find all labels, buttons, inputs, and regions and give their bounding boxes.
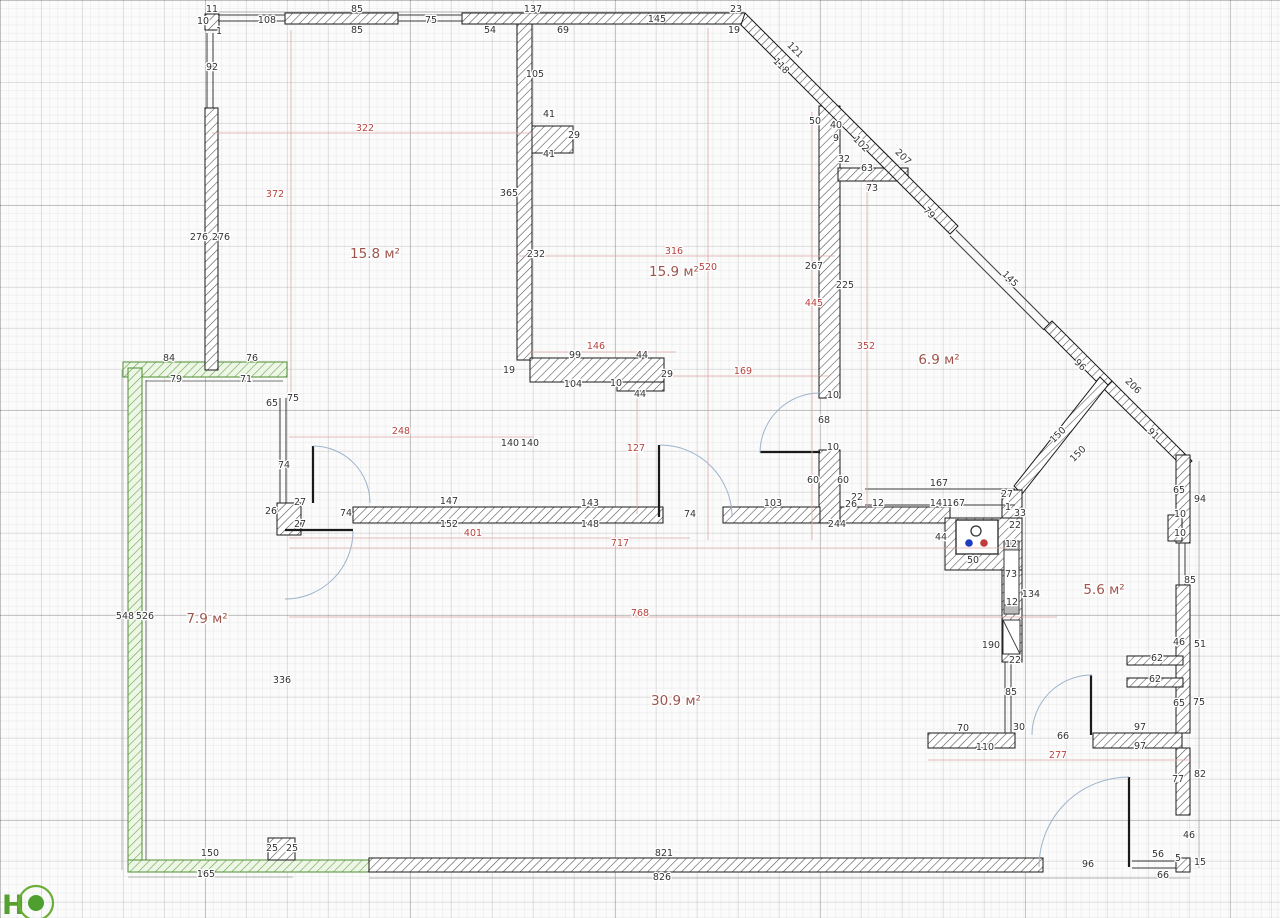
- dimension-label: 30: [1013, 722, 1025, 733]
- dimension-label: 10: [610, 378, 622, 389]
- dimension-label: 82: [1194, 769, 1206, 780]
- dimension-label: 23: [730, 4, 742, 15]
- dimension-label: 22: [1009, 655, 1021, 666]
- dimension-label: 150: [1068, 444, 1089, 465]
- dimension-label: 85: [351, 4, 363, 15]
- door-arc: [760, 393, 820, 453]
- dimension-label-red: 248: [392, 426, 410, 437]
- wall-159-east: [819, 106, 840, 398]
- dimension-label-red: 768: [631, 608, 649, 619]
- dimension-label: 225: [836, 280, 854, 291]
- dimension-label: 140: [521, 438, 539, 449]
- dimension-label: 137: [524, 4, 542, 15]
- dimension-label: 32: [838, 154, 850, 165]
- dimension-label: 60: [807, 475, 819, 486]
- dimension-label: 46: [1173, 637, 1185, 648]
- dimension-label: 97: [1134, 741, 1146, 752]
- dimension-label: 134: [1022, 589, 1040, 600]
- dimension-label: 77: [1172, 774, 1184, 785]
- dimension-label: 29: [568, 130, 580, 141]
- dimension-label: 1: [216, 26, 222, 37]
- dimension-label: 108: [258, 15, 276, 26]
- dimension-label: 44: [935, 532, 947, 543]
- dimension-label: 19: [728, 25, 740, 36]
- dimension-label: 65: [1173, 485, 1185, 496]
- dimension-label-red: 372: [266, 189, 284, 200]
- dimension-label: 276: [212, 232, 230, 243]
- dimension-label: 821: [655, 848, 673, 859]
- wall-159-bottom: [530, 358, 664, 382]
- room-area-label: 30.9 м²: [651, 693, 701, 709]
- electric-panel-icon: [956, 520, 998, 554]
- wall-green-bottom: [128, 860, 369, 872]
- dimension-label: 65: [266, 398, 278, 409]
- dimension-label: 145: [999, 269, 1020, 290]
- dimension-label: 97: [1134, 722, 1146, 733]
- door-arc: [1032, 675, 1092, 735]
- dimension-label: 71: [240, 374, 252, 385]
- dimension-label: 85: [1184, 575, 1196, 586]
- dimension-label: 75: [287, 393, 299, 404]
- dimension-label: 99: [569, 350, 581, 361]
- dimension-label: 73: [1005, 569, 1017, 580]
- dimension-label: 152: [440, 519, 458, 530]
- dimension-label: 276: [190, 232, 208, 243]
- dimension-label: 69: [557, 25, 569, 36]
- dimension-label: 105: [526, 69, 544, 80]
- dimension-label: 25: [286, 843, 298, 854]
- logo-icon: Н: [2, 886, 53, 918]
- dimension-label: 147: [440, 496, 458, 507]
- dimension-label: 267: [805, 261, 823, 272]
- dimension-label: 26: [845, 499, 857, 510]
- dimension-label: 62: [1149, 674, 1161, 685]
- dimension-label: 19: [503, 365, 515, 376]
- dimension-label: 143: [581, 498, 599, 509]
- dimension-label: 826: [653, 872, 671, 883]
- door-arc: [1039, 777, 1129, 867]
- dimension-label: 26: [265, 506, 277, 517]
- dimension-label: 27: [1001, 489, 1013, 500]
- dimension-label-red: 401: [464, 528, 482, 539]
- vent-duct-icon: [1003, 620, 1020, 654]
- dimension-label: 190: [982, 640, 1000, 651]
- dimension-label: 10: [197, 16, 209, 27]
- dimension-label: 70: [957, 723, 969, 734]
- dimension-label: 10: [827, 390, 839, 401]
- dimension-label: 68: [818, 415, 830, 426]
- dimension-label: 25: [266, 843, 278, 854]
- dimension-label: 12: [872, 498, 884, 509]
- dimension-label: 27: [294, 519, 306, 530]
- dimension-label: 76: [246, 353, 258, 364]
- dimension-label: 50: [967, 555, 979, 566]
- dimension-label: 85: [1005, 687, 1017, 698]
- wall-hall-mid: [723, 507, 820, 523]
- dimension-label: 365: [500, 188, 518, 199]
- door-arc: [313, 446, 370, 503]
- dimension-label: 11: [206, 4, 218, 15]
- dimension-label-red: 127: [627, 443, 645, 454]
- walls-layer: [123, 13, 1192, 872]
- dimension-label: 51: [1194, 639, 1206, 650]
- dimension-label: 44: [636, 350, 648, 361]
- dimension-label: 66: [1057, 731, 1069, 742]
- wall-159-east-pillar: [819, 450, 840, 523]
- dimension-label: 244: [828, 519, 846, 530]
- dimension-label: 79: [170, 374, 182, 385]
- room-area-label: 6.9 м²: [918, 352, 959, 368]
- dimension-label: 56: [1152, 849, 1164, 860]
- room-area-label: 7.9 м²: [186, 611, 227, 627]
- dimension-label: 148: [581, 519, 599, 530]
- room-area-label: 5.6 м²: [1083, 582, 1124, 598]
- dimension-label: 74: [340, 508, 352, 519]
- dimension-label: 63: [861, 163, 873, 174]
- dimension-label: 10: [1174, 509, 1186, 520]
- dimension-label: 94: [1194, 494, 1206, 505]
- dimension-label: 74: [278, 460, 290, 471]
- dimension-label: 12: [1005, 539, 1017, 550]
- dimension-label: 44: [634, 389, 646, 400]
- dimension-label: 165: [197, 869, 215, 880]
- dimension-label: 65: [1173, 698, 1185, 709]
- room-area-label: 15.8 м²: [350, 246, 400, 262]
- dimension-label: 54: [484, 25, 496, 36]
- dimension-label: 41: [543, 109, 555, 120]
- dimension-label-red: 445: [805, 298, 823, 309]
- dimension-label: 41: [543, 149, 555, 160]
- dimension-label: 167: [947, 498, 965, 509]
- dimension-label-red: 352: [857, 341, 875, 352]
- dimension-label: 15: [1194, 857, 1206, 868]
- labels-layer: 1110110885857513754699227627610541294136…: [116, 4, 1206, 883]
- dimension-label: 73: [866, 183, 878, 194]
- dimension-label: 12: [1006, 597, 1018, 608]
- dimension-label: 27: [294, 497, 306, 508]
- dimension-label: 66: [1157, 870, 1169, 881]
- dimension-label: 84: [163, 353, 175, 364]
- dimension-label: 232: [527, 249, 545, 260]
- wall-bottom: [369, 858, 1043, 872]
- dimension-label-red: 146: [587, 341, 605, 352]
- dimension-label: 62: [1151, 653, 1163, 664]
- dimension-label: 150: [201, 848, 219, 859]
- dimension-label: 145: [648, 14, 666, 25]
- room-area-label: 15.9 м²: [649, 264, 699, 280]
- logo-circle-inner: [28, 895, 44, 911]
- dimension-label: 140: [501, 438, 519, 449]
- dimension-label: 5: [1175, 853, 1181, 864]
- wall-top-2: [462, 13, 745, 24]
- dimension-label: 10: [1174, 528, 1186, 539]
- dimension-label-red: 316: [665, 246, 683, 257]
- dimension-label: 110: [976, 742, 994, 753]
- door-arc: [285, 531, 353, 599]
- dimension-label: 75: [1193, 697, 1205, 708]
- dimension-label: 50: [809, 116, 821, 127]
- wall-56-south-west: [928, 733, 1015, 748]
- dimension-label: 22: [1009, 520, 1021, 531]
- dimension-label: 10: [827, 442, 839, 453]
- dimension-label: 46: [1183, 830, 1195, 841]
- dimension-label: 29: [661, 369, 673, 380]
- dimension-label: 92: [206, 62, 218, 73]
- dimension-label: 104: [564, 379, 582, 390]
- dimension-label: 96: [1082, 859, 1094, 870]
- wall-diagonal-upper: [741, 13, 958, 234]
- dimension-label-red: 277: [1049, 750, 1067, 761]
- dimension-label: 75: [425, 15, 437, 26]
- dimension-label: 40: [830, 120, 842, 131]
- dimension-label: 85: [351, 25, 363, 36]
- dimension-label: 103: [764, 498, 782, 509]
- dimension-label: 167: [930, 478, 948, 489]
- wall-hall-west: [353, 507, 663, 523]
- dimension-label: 1: [1005, 502, 1011, 513]
- dimension-label: 9: [833, 133, 839, 144]
- dimension-label: 206: [1122, 376, 1143, 397]
- dimension-label-red: 322: [356, 123, 374, 134]
- dimension-label: 526: [136, 611, 154, 622]
- wall-top-1: [285, 13, 398, 24]
- dimension-label: 74: [684, 509, 696, 520]
- floorplan-canvas: 1110110885857513754699227627610541294136…: [0, 0, 1280, 918]
- dimension-label: 336: [273, 675, 291, 686]
- dimension-label-red: 520: [699, 262, 717, 273]
- dimension-label: 548: [116, 611, 134, 622]
- dimension-label: 33: [1014, 508, 1026, 519]
- dimension-label: 141: [930, 498, 948, 509]
- dimension-label-red: 717: [611, 538, 629, 549]
- door-arc: [660, 445, 732, 517]
- dimension-label-red: 169: [734, 366, 752, 377]
- dimension-label: 60: [837, 475, 849, 486]
